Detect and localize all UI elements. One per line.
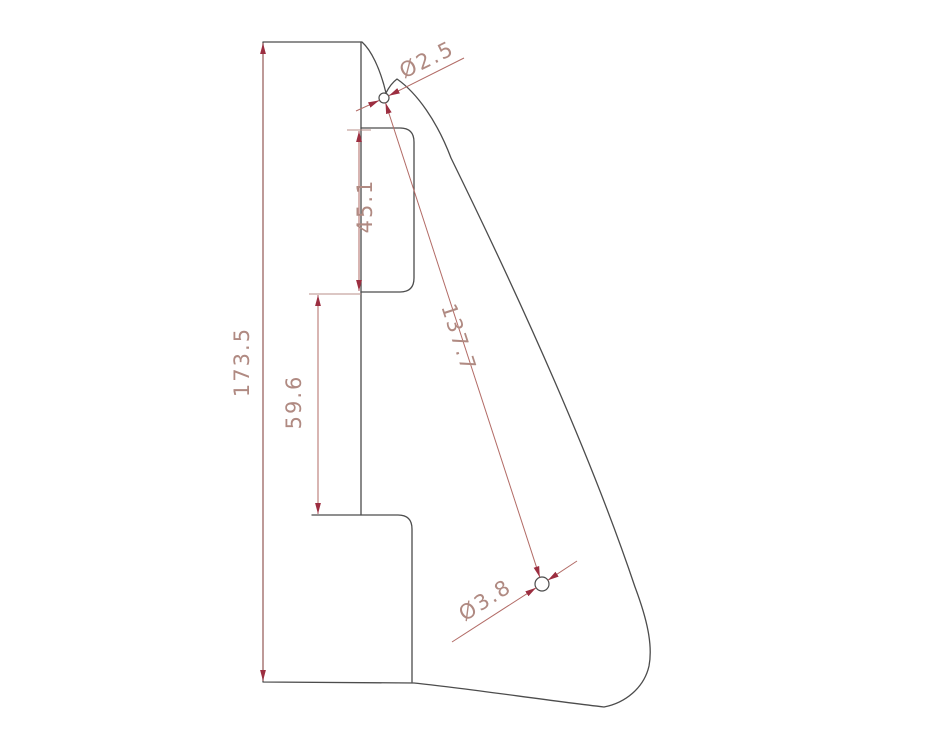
small-hole xyxy=(379,93,389,103)
inner-step xyxy=(312,515,412,682)
large-hole xyxy=(535,577,549,591)
dim-text-overall-height: 173.5 xyxy=(230,327,254,397)
drawing-svg: 173.5 45.1 59.6 137.7 Ø2.5 Ø3.8 xyxy=(0,0,938,750)
dim-text-step-offset: 59.6 xyxy=(282,375,306,430)
dim-text-hole-spacing: 137.7 xyxy=(436,301,480,375)
leader-large-hole-head xyxy=(548,561,577,580)
dim-text-large-hole: Ø3.8 xyxy=(454,574,516,626)
dim-text-cutout-height: 45.1 xyxy=(353,179,377,234)
cad-canvas: 173.5 45.1 59.6 137.7 Ø2.5 Ø3.8 xyxy=(0,0,938,750)
leader-small-hole-tail xyxy=(356,100,379,111)
dimensions-group: 173.5 45.1 59.6 137.7 Ø2.5 Ø3.8 xyxy=(230,36,577,681)
